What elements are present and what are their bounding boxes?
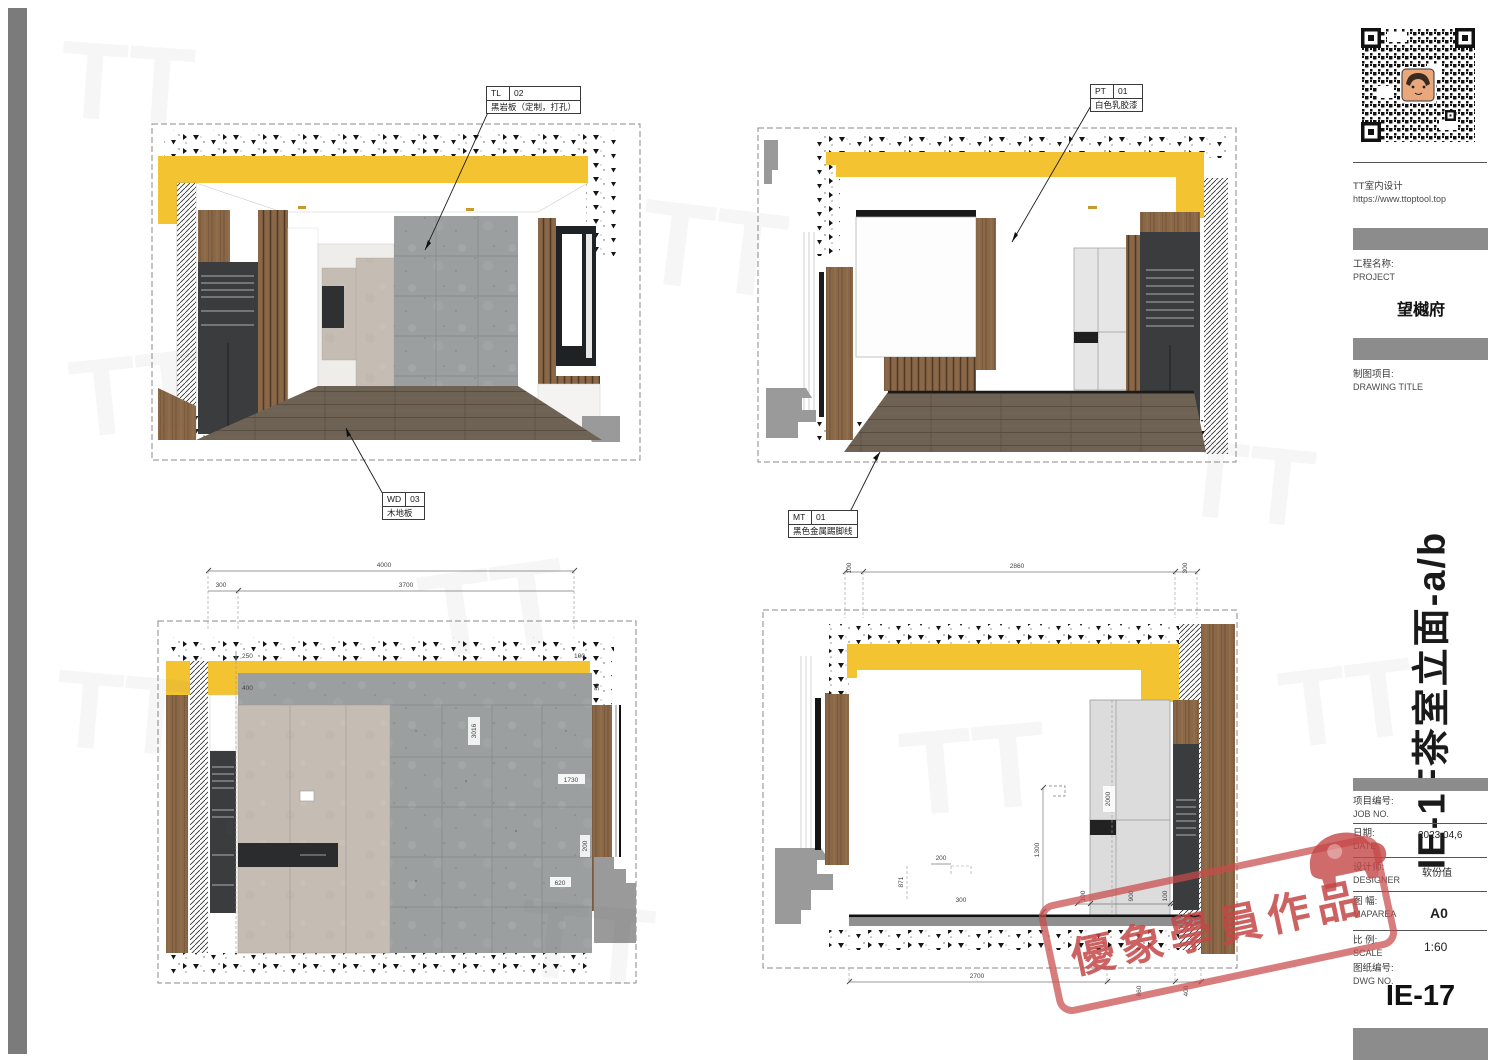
divider — [1353, 891, 1487, 892]
svg-text:1730: 1730 — [564, 777, 579, 784]
concrete-panel-wall — [390, 705, 592, 953]
material-desc: 黑色金属踢脚线 — [789, 525, 857, 538]
qr-alignment-icon — [1445, 110, 1456, 121]
dwg-label-cn: 图纸编号: — [1353, 962, 1489, 975]
material-desc: 白色乳胶漆 — [1091, 99, 1142, 112]
designer-value: 软份值 — [1422, 864, 1452, 879]
drawing-label-cn: 制图项目: — [1353, 368, 1489, 381]
svg-text:300: 300 — [956, 897, 967, 904]
project-label: 工程名称: PROJECT — [1353, 258, 1489, 284]
qr-finder-icon — [1361, 122, 1381, 142]
maparea-field: 图 幅: MAPAREA — [1353, 895, 1489, 921]
sheet-canvas: 4000 300 3700 — [0, 0, 1500, 1060]
svg-text:400: 400 — [1183, 985, 1190, 996]
svg-text:620: 620 — [555, 880, 566, 887]
svg-text:400: 400 — [242, 685, 253, 692]
material-number: 01 — [1114, 85, 1142, 98]
ceiling-band-yellow — [836, 152, 1204, 177]
svg-text:871: 871 — [898, 876, 905, 887]
qr-code — [1357, 24, 1479, 146]
scale-field: 比 例: SCALE — [1353, 934, 1489, 960]
qr-finder-icon — [1361, 28, 1381, 48]
material-label-tl: TL02 黑岩板（定制，打孔） — [486, 86, 581, 114]
svg-text:3700: 3700 — [399, 582, 414, 589]
material-label-pt: PT01 白色乳胶漆 — [1090, 84, 1143, 112]
job-label-en: JOB NO. — [1353, 808, 1489, 821]
divider — [1353, 930, 1487, 931]
elevation-b-dimensioned: 100 2860 300 2000 — [763, 562, 1237, 996]
svg-text:100: 100 — [1162, 890, 1169, 901]
divider — [1353, 857, 1487, 858]
material-label-wd: WD03 木地板 — [382, 492, 425, 520]
svg-text:2000: 2000 — [227, 819, 234, 834]
company-name: TT室内设计 — [1353, 180, 1489, 193]
title-block-bar — [1353, 1028, 1488, 1060]
material-number: 03 — [406, 493, 423, 506]
maparea-label-cn: 图 幅: — [1353, 895, 1489, 908]
beige-panel-wall — [238, 705, 390, 953]
projection-screen — [856, 217, 976, 357]
material-code: MT — [789, 511, 812, 524]
drawing-title-label: 制图项目: DRAWING TITLE — [1353, 368, 1489, 394]
divider — [1353, 162, 1487, 163]
project-name: 望樾府 — [1353, 296, 1489, 320]
elevation-a-drawing — [152, 124, 640, 460]
dark-cabinet — [1173, 744, 1199, 910]
date-label-en: DATE — [1353, 840, 1489, 853]
material-label-mt: MT01 黑色金属踢脚线 — [788, 510, 858, 538]
svg-text:200: 200 — [582, 840, 589, 851]
svg-text:300: 300 — [216, 582, 227, 589]
material-code: WD — [383, 493, 406, 506]
concrete-panel-wall — [394, 216, 518, 410]
wall-section-hatch — [1204, 178, 1228, 454]
svg-text:860: 860 — [1136, 985, 1143, 996]
project-label-en: PROJECT — [1353, 271, 1489, 284]
svg-text:100: 100 — [846, 562, 853, 573]
qr-avatar-icon — [1400, 67, 1436, 103]
svg-text:100: 100 — [574, 653, 585, 660]
material-number: 01 — [812, 511, 857, 524]
title-block-bar — [1353, 338, 1488, 360]
svg-text:900: 900 — [1128, 890, 1135, 901]
elevation-b-drawing — [758, 128, 1236, 462]
title-block-bar — [1353, 778, 1488, 791]
maparea-label-en: MAPAREA — [1353, 908, 1489, 921]
svg-text:4000: 4000 — [377, 562, 392, 569]
svg-text:50: 50 — [594, 683, 601, 691]
svg-text:250: 250 — [242, 653, 253, 660]
material-number: 02 — [510, 87, 580, 100]
wood-slat-sill — [884, 357, 976, 391]
designer-label-cn: 设计师: — [1353, 861, 1489, 874]
svg-text:3016: 3016 — [471, 723, 478, 738]
ceiling-band-yellow — [158, 156, 588, 183]
drawing-sheet-page: { "sheet": { "number": "IE-17" }, "compa… — [0, 0, 1500, 1060]
job-label-cn: 项目编号: — [1353, 795, 1489, 808]
title-block-bar — [1353, 228, 1488, 250]
svg-text:100: 100 — [1080, 890, 1087, 901]
ceiling-band-yellow — [847, 644, 1179, 670]
material-code: PT — [1091, 85, 1114, 98]
qr-finder-icon — [1455, 28, 1475, 48]
svg-text:2700: 2700 — [970, 973, 985, 980]
scale-value: 1:60 — [1424, 940, 1447, 954]
designer-label-en: DESIGNER — [1353, 874, 1489, 887]
svg-text:200: 200 — [936, 855, 947, 862]
material-desc: 木地板 — [383, 507, 424, 520]
scale-label-en: SCALE — [1353, 947, 1489, 960]
material-desc: 黑岩板（定制，打孔） — [487, 101, 580, 114]
svg-text:2000: 2000 — [1105, 791, 1112, 806]
material-code: TL — [487, 87, 510, 100]
wood-floor — [844, 392, 1206, 452]
drawing-label-en: DRAWING TITLE — [1353, 381, 1489, 394]
wall-section-hatch — [190, 661, 208, 953]
scale-label-cn: 比 例: — [1353, 934, 1489, 947]
date-value: 2023,04,6 — [1418, 830, 1463, 841]
job-no-field: 项目编号: JOB NO. — [1353, 795, 1489, 821]
company-block: TT室内设计 https://www.ttoptool.top — [1353, 180, 1489, 206]
designer-field: 设计师: DESIGNER — [1353, 861, 1489, 887]
svg-text:2860: 2860 — [1010, 563, 1025, 570]
elevation-a-dimensioned: 4000 300 3700 — [158, 562, 636, 983]
project-label-cn: 工程名称: — [1353, 258, 1489, 271]
sheet-number: IE-17 — [1353, 980, 1488, 1013]
svg-text:300: 300 — [1182, 562, 1189, 573]
door-panel — [1090, 700, 1170, 916]
maparea-value: A0 — [1430, 905, 1448, 921]
company-url: https://www.ttoptool.top — [1353, 193, 1489, 206]
crown-section — [775, 848, 833, 924]
svg-text:1300: 1300 — [1034, 842, 1041, 857]
divider — [1353, 823, 1487, 824]
